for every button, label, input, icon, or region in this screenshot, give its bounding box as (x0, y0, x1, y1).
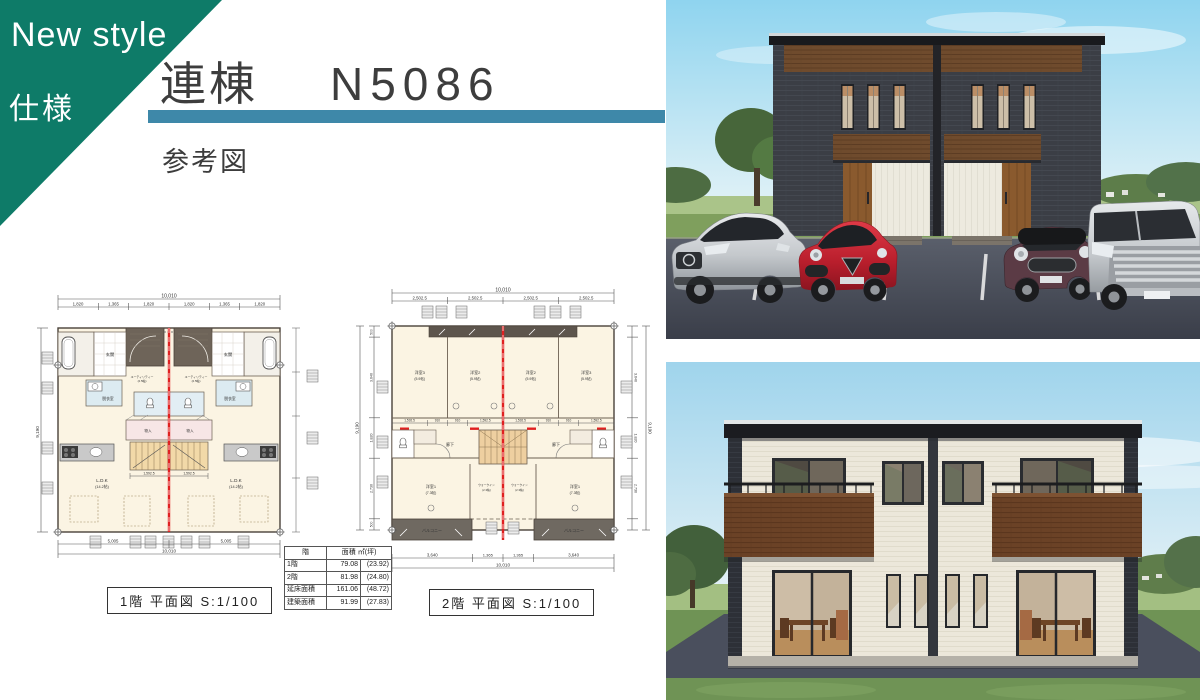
plan1-caption: 1階 平面図 S:1/100 (107, 587, 272, 614)
building-rear (724, 420, 1142, 669)
svg-text:2,730: 2,730 (370, 484, 374, 493)
svg-text:洋室2: 洋室2 (470, 369, 481, 375)
svg-text:ウォークイン: ウォークイン (478, 483, 495, 487)
party-wall-divider (928, 438, 938, 666)
party-wall-divider (933, 45, 941, 236)
table-row: 1階79.08(23.92) (285, 559, 392, 572)
svg-text:910: 910 (455, 419, 461, 423)
svg-text:1,592.5: 1,592.5 (183, 472, 194, 476)
svg-text:2,730: 2,730 (634, 484, 638, 493)
table-row: 2階81.98(24.80) (285, 572, 392, 585)
svg-text:1,820: 1,820 (634, 434, 638, 443)
svg-text:10,010: 10,010 (161, 294, 177, 300)
svg-text:1,365: 1,365 (483, 553, 494, 558)
svg-text:1,820: 1,820 (370, 434, 374, 443)
svg-text:2,502.5: 2,502.5 (413, 296, 428, 301)
svg-text:910: 910 (566, 419, 572, 423)
area-table: 階面積 ㎡(坪) 1階79.08(23.92) 2階81.98(24.80) 延… (284, 546, 392, 610)
svg-text:9,190: 9,190 (355, 422, 360, 434)
floor-plan-2f: 10,010 2,502.5 2,502.5 2,502.5 2,502.5 5… (344, 286, 662, 586)
svg-text:(7.3帖): (7.3帖) (570, 490, 581, 495)
svg-text:1,820: 1,820 (184, 302, 195, 307)
svg-text:1,592.5: 1,592.5 (404, 419, 415, 423)
svg-text:1,820: 1,820 (73, 302, 84, 307)
svg-text:L.D.K: L.D.K (96, 478, 108, 483)
svg-text:洋室3: 洋室3 (415, 369, 426, 375)
first-floor-glass-door-left (772, 570, 852, 658)
svg-text:(5.9帖): (5.9帖) (581, 376, 592, 381)
banner-line1: New style (11, 16, 167, 55)
svg-text:(5.9帖): (5.9帖) (414, 376, 425, 381)
title-series: 連棟 (160, 58, 258, 110)
svg-text:物入: 物入 (186, 428, 194, 433)
subtitle-reference-figure: 参考図 (162, 140, 249, 179)
floor-plan-1f: 10,010 1,820 1,365 1,820 1,820 1,365 1,8… (30, 292, 330, 580)
svg-text:(2.3帖): (2.3帖) (482, 488, 491, 492)
svg-text:洋室2: 洋室2 (526, 369, 537, 375)
svg-text:2,502.5: 2,502.5 (524, 296, 539, 301)
svg-text:1,820: 1,820 (143, 302, 154, 307)
table-row: 延床面積161.06(48.72) (285, 584, 392, 597)
svg-text:3,640: 3,640 (370, 373, 374, 382)
front-door-right (1002, 163, 1031, 236)
page-title: 連棟N5086 (160, 48, 501, 114)
entry-canopy-left (833, 134, 930, 160)
svg-text:10,010: 10,010 (496, 563, 510, 568)
svg-text:(5.9帖): (5.9帖) (470, 376, 481, 381)
svg-text:(7.3帖): (7.3帖) (426, 490, 437, 495)
svg-text:500: 500 (370, 329, 374, 335)
svg-text:3,640: 3,640 (634, 373, 638, 382)
balcony-left (724, 484, 874, 562)
svg-text:1,592.5: 1,592.5 (480, 419, 491, 423)
title-underline-bar (148, 110, 665, 123)
svg-text:10,010: 10,010 (162, 549, 176, 554)
svg-text:3,640: 3,640 (568, 553, 579, 558)
svg-text:10,010: 10,010 (495, 288, 511, 294)
svg-text:910: 910 (546, 419, 552, 423)
svg-text:1,365: 1,365 (219, 302, 230, 307)
svg-text:1,820: 1,820 (254, 302, 265, 307)
first-floor-glass-door-right (1016, 570, 1096, 658)
svg-text:5,005: 5,005 (221, 539, 232, 544)
svg-text:500: 500 (370, 521, 374, 527)
svg-text:(14.2帖): (14.2帖) (229, 484, 243, 489)
svg-text:(2.3帖): (2.3帖) (515, 488, 524, 492)
render-rear-exterior (666, 362, 1200, 700)
area-col-floor: 階 (285, 547, 327, 560)
svg-text:バルコニー: バルコニー (564, 528, 584, 533)
table-row: 建築面積91.99(27.83) (285, 597, 392, 610)
car-silver-van (1088, 201, 1200, 310)
entry-canopy-right (944, 134, 1041, 160)
svg-text:洋室1: 洋室1 (570, 483, 581, 489)
svg-text:(14.2帖): (14.2帖) (95, 484, 109, 489)
svg-text:L.D.K: L.D.K (230, 478, 242, 483)
svg-text:910: 910 (435, 419, 441, 423)
svg-text:2,502.5: 2,502.5 (579, 296, 594, 301)
svg-text:1,365: 1,365 (513, 553, 524, 558)
spec-sheet-page: New style 仕様 連棟N5086 参考図 10,010 1,820 1,… (0, 0, 1200, 700)
entry-panel-right (944, 163, 1002, 236)
svg-text:バルコニー: バルコニー (422, 528, 442, 533)
svg-text:1,365: 1,365 (108, 302, 119, 307)
svg-text:1,592.5: 1,592.5 (591, 419, 602, 423)
svg-text:(2.5帖): (2.5帖) (192, 378, 201, 383)
svg-text:ウォークイン: ウォークイン (511, 483, 528, 487)
banner-line2: 仕様 (9, 84, 75, 128)
title-model-number: N5086 (330, 58, 501, 110)
svg-text:脱衣室: 脱衣室 (224, 396, 236, 401)
svg-text:(2.5帖): (2.5帖) (138, 378, 147, 383)
svg-text:5,005: 5,005 (108, 539, 119, 544)
svg-text:1,592.5: 1,592.5 (143, 472, 154, 476)
svg-text:2,502.5: 2,502.5 (468, 296, 483, 301)
entry-panel-left (872, 163, 930, 236)
svg-text:洋室1: 洋室1 (426, 483, 437, 489)
svg-text:洋室3: 洋室3 (581, 369, 592, 375)
svg-text:(5.9帖): (5.9帖) (525, 376, 536, 381)
svg-text:1,592.5: 1,592.5 (515, 419, 526, 423)
svg-text:脱衣室: 脱衣室 (102, 396, 114, 401)
svg-text:廊下: 廊下 (446, 441, 454, 447)
svg-text:廊下: 廊下 (552, 441, 560, 447)
svg-text:9,190: 9,190 (648, 422, 653, 434)
plan2-caption: 2階 平面図 S:1/100 (429, 589, 594, 616)
svg-text:玄関: 玄関 (106, 351, 114, 358)
svg-text:玄関: 玄関 (224, 351, 232, 358)
svg-text:物入: 物入 (144, 428, 152, 433)
balcony-right (992, 484, 1142, 562)
svg-text:3,640: 3,640 (427, 553, 438, 558)
building-front (769, 33, 1105, 245)
svg-text:9,190: 9,190 (35, 426, 40, 438)
render-front-exterior (666, 0, 1200, 339)
area-col-area: 面積 ㎡(坪) (327, 547, 392, 560)
